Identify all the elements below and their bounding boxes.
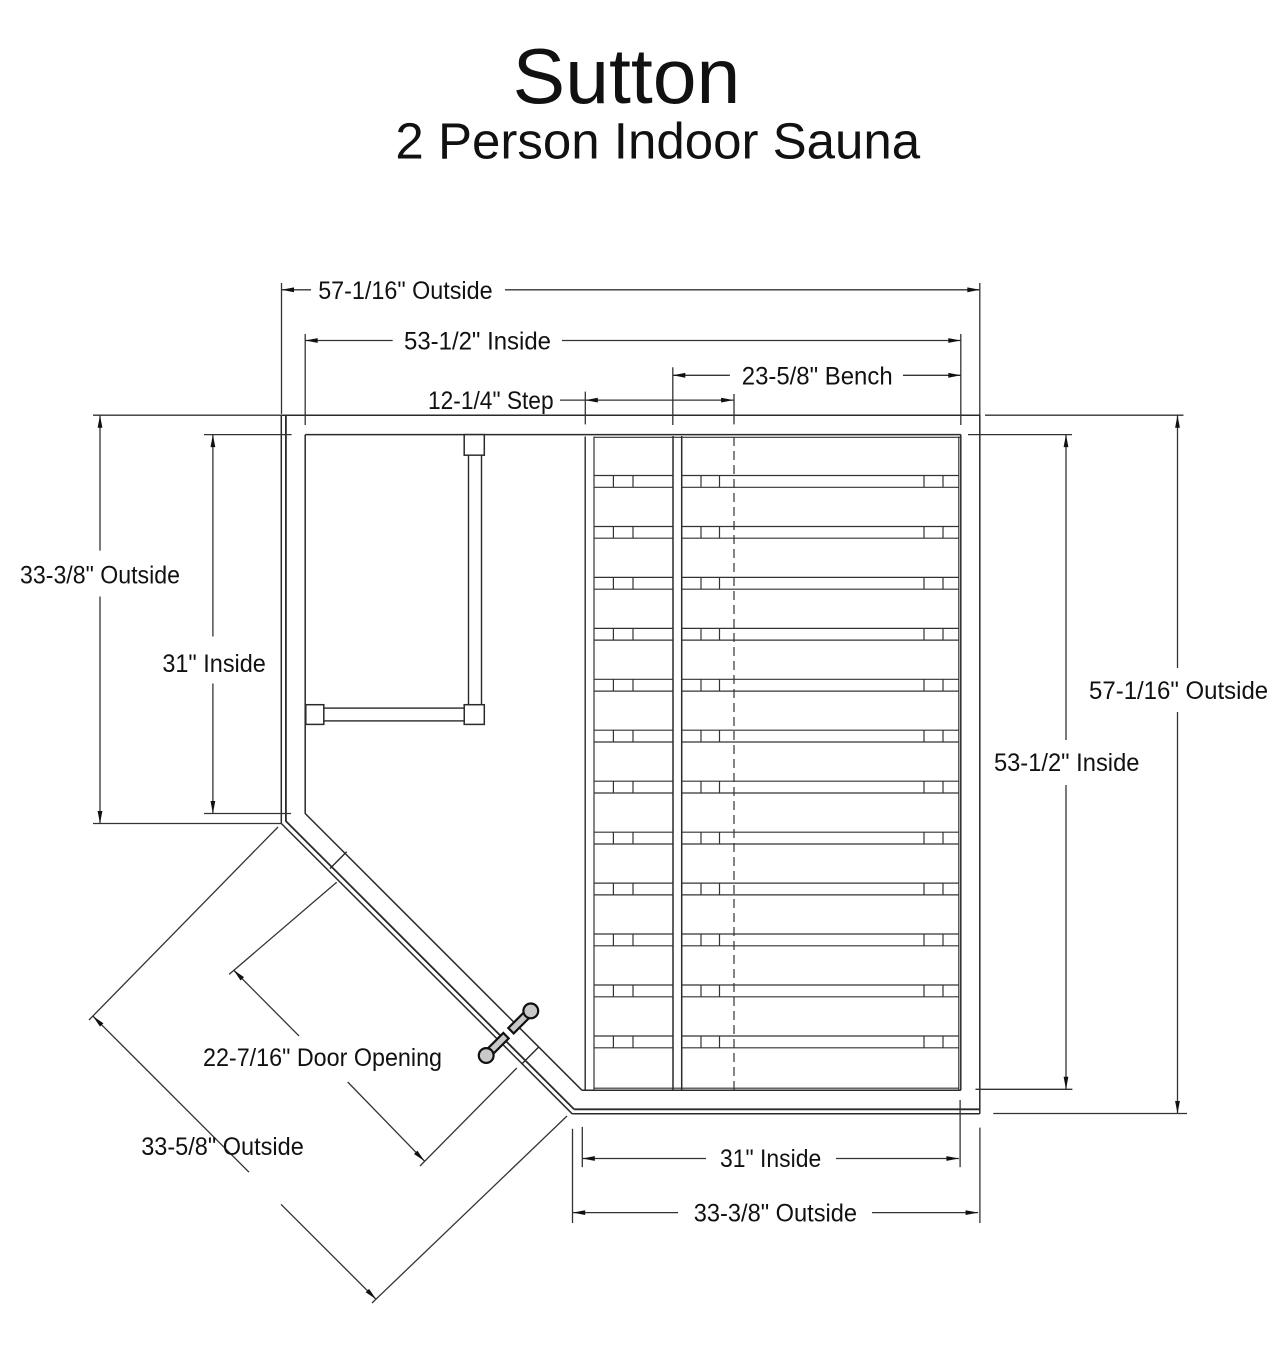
svg-text:31" Inside: 31" Inside: [720, 1145, 821, 1173]
svg-text:Sutton: Sutton: [513, 32, 741, 120]
svg-text:33-3/8" Outside: 33-3/8" Outside: [20, 562, 180, 590]
svg-text:33-5/8" Outside: 33-5/8" Outside: [141, 1133, 304, 1161]
svg-text:33-3/8" Outside: 33-3/8" Outside: [694, 1200, 857, 1228]
svg-text:57-1/16" Outside: 57-1/16" Outside: [1089, 677, 1268, 705]
svg-text:23-5/8" Bench: 23-5/8" Bench: [742, 362, 893, 390]
svg-text:12-1/4" Step: 12-1/4" Step: [428, 387, 554, 415]
svg-text:57-1/16" Outside: 57-1/16" Outside: [318, 277, 492, 305]
svg-text:31" Inside: 31" Inside: [162, 650, 266, 678]
svg-text:2 Person Indoor Sauna: 2 Person Indoor Sauna: [395, 112, 920, 169]
svg-text:53-1/2" Inside: 53-1/2" Inside: [994, 749, 1140, 777]
svg-text:22-7/16" Door Opening: 22-7/16" Door Opening: [203, 1044, 442, 1072]
svg-text:53-1/2" Inside: 53-1/2" Inside: [404, 327, 551, 355]
